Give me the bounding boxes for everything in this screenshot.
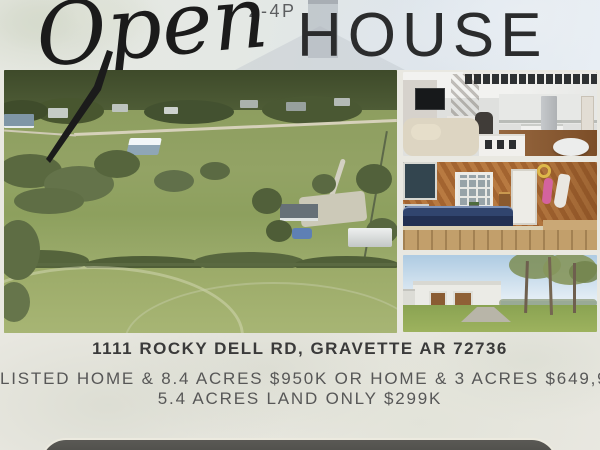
cta-button[interactable]: [40, 438, 558, 450]
hanging-ring: [537, 164, 551, 178]
open-house-flyer: 2-4P Open HOUSE: [0, 0, 600, 450]
listing-price-line-2: 5.4 ACRES LAND ONLY $299K: [0, 389, 600, 409]
road: [74, 119, 397, 136]
hot-tub-room-photo: [403, 162, 597, 250]
neighbor-house: [4, 114, 34, 128]
interior-living-kitchen-photo: [403, 72, 597, 156]
wood-platform: [403, 230, 597, 250]
blue-tarp: [292, 228, 312, 239]
house-headline: HOUSE: [297, 3, 547, 69]
aerial-property-photo: [4, 70, 397, 333]
outbuilding-roof: [348, 228, 392, 247]
shop-building-photo: [403, 255, 597, 332]
listed-house-roof: [280, 204, 318, 221]
listing-price-line-1: LISTED HOME & 8.4 ACRES $950K OR HOME & …: [0, 369, 600, 389]
loft-railing: [463, 72, 597, 84]
window: [403, 162, 437, 200]
white-door: [511, 169, 537, 225]
refrigerator: [541, 96, 557, 130]
wall-tv: [415, 88, 445, 110]
hedge-row: [4, 263, 397, 266]
property-address: 1111 ROCKY DELL RD, GRAVETTE AR 72736: [0, 339, 600, 359]
round-table: [553, 138, 589, 156]
